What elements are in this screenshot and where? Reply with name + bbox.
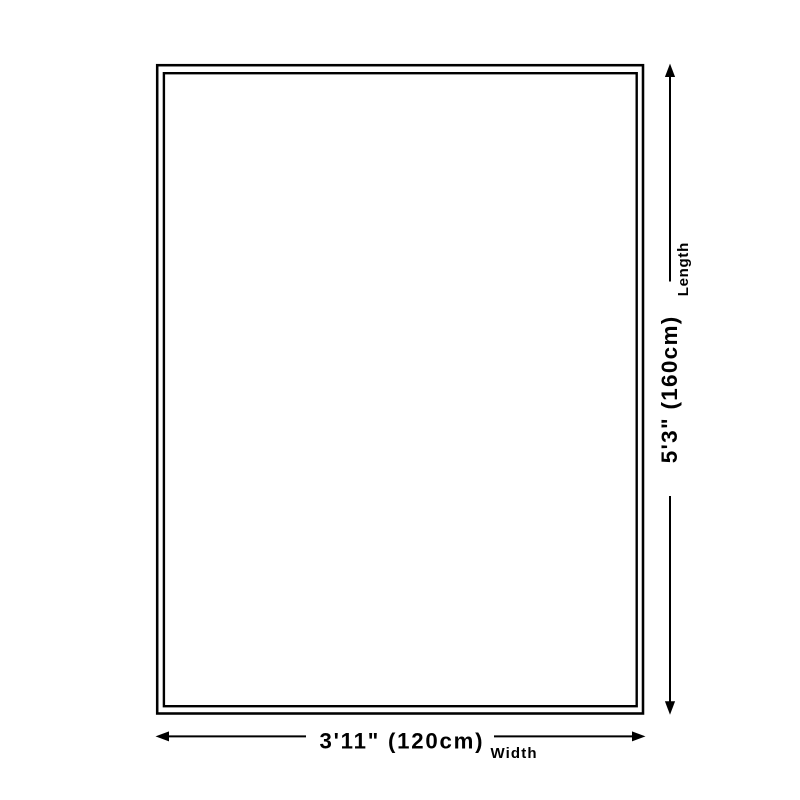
svg-text:3'11" (120cm): 3'11" (120cm) [320,729,483,754]
svg-text:Length: Length [675,243,692,297]
svg-text:Width: Width [491,745,537,762]
svg-text:5'3" (160cm): 5'3" (160cm) [657,317,682,464]
